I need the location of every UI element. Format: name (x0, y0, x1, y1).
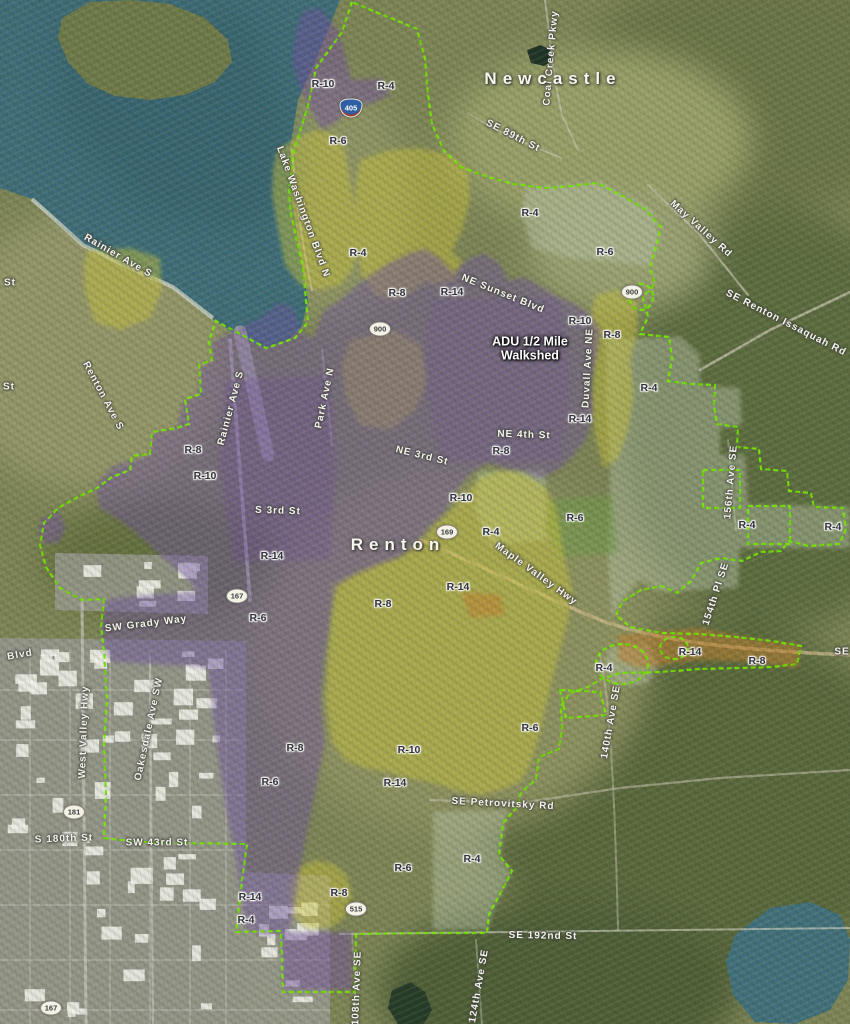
map-canvas[interactable]: ADU 1/2 Mile Walkshed R-10R-4R-6R-4R-4R-… (0, 0, 850, 1024)
satellite-base (0, 0, 850, 1024)
